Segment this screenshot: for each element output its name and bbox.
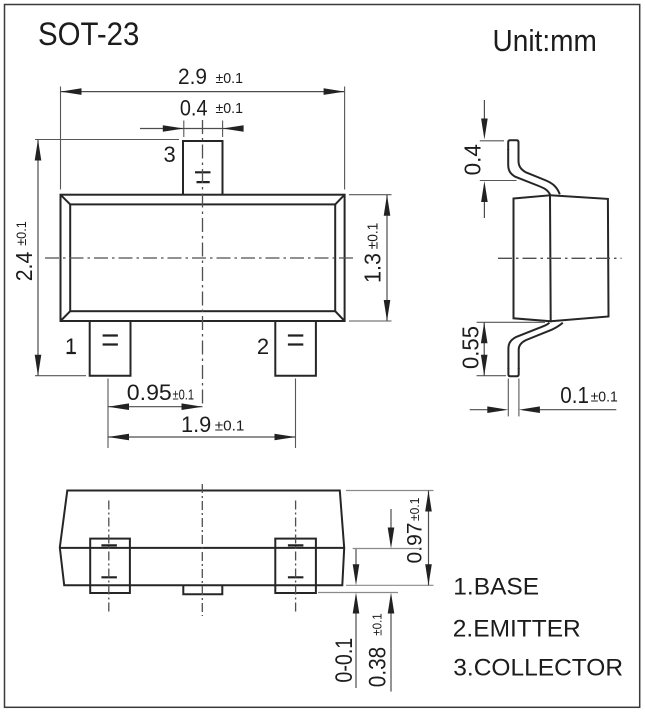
svg-text:3.COLLECTOR: 3.COLLECTOR (453, 655, 623, 682)
svg-text:2: 2 (257, 334, 269, 359)
svg-text:2.9: 2.9 (178, 64, 207, 89)
svg-text:±0.1: ±0.1 (591, 389, 618, 406)
svg-text:0.38: 0.38 (365, 647, 392, 688)
svg-text:0.1: 0.1 (560, 382, 589, 408)
svg-text:0.55: 0.55 (458, 326, 484, 369)
svg-text:0.4: 0.4 (460, 144, 486, 175)
svg-text:2.EMITTER: 2.EMITTER (453, 616, 581, 643)
svg-text:±0.1: ±0.1 (407, 498, 422, 521)
svg-text:3: 3 (163, 142, 175, 167)
svg-text:±0.1: ±0.1 (216, 100, 244, 117)
svg-text:±0.1: ±0.1 (216, 70, 244, 87)
svg-text:0.95: 0.95 (127, 380, 172, 405)
svg-text:0.4: 0.4 (180, 95, 208, 120)
svg-text:2.4: 2.4 (11, 252, 37, 282)
svg-text:±0.1: ±0.1 (215, 418, 245, 435)
svg-text:±0.1: ±0.1 (13, 221, 29, 246)
svg-text:Unit:mm: Unit:mm (493, 23, 597, 58)
svg-text:±0.1: ±0.1 (173, 387, 195, 404)
svg-text:1.9: 1.9 (181, 412, 211, 437)
svg-text:0.97: 0.97 (404, 523, 427, 564)
svg-text:±0.1: ±0.1 (365, 223, 382, 250)
svg-text:1.BASE: 1.BASE (453, 574, 539, 601)
svg-text:0-0.1: 0-0.1 (331, 638, 358, 683)
svg-text:1: 1 (65, 334, 77, 359)
svg-text:SOT-23: SOT-23 (38, 16, 139, 52)
svg-text:1.3: 1.3 (360, 253, 386, 283)
svg-text:±0.1: ±0.1 (370, 613, 385, 635)
